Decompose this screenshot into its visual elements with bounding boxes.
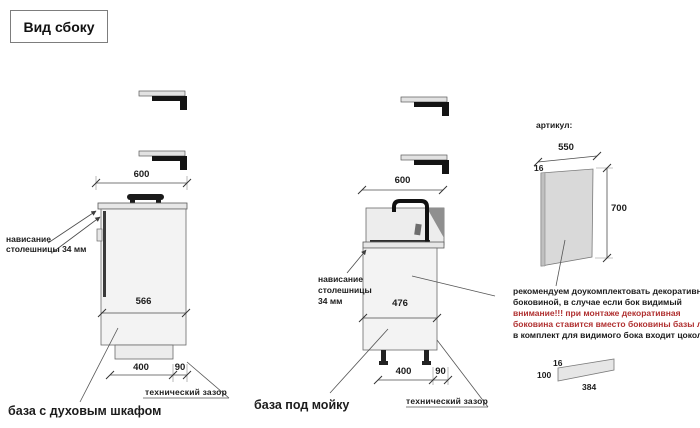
note-line-warning: боковина ставится вместо боковины базы л… [513,319,699,330]
note-line-warning: внимание!!! при монтаже декоративная [513,308,699,319]
dim-line-width [534,152,601,166]
plinth-panel [115,345,173,359]
oven-door-edge [103,211,106,297]
dim-476: 476 [363,298,437,309]
wall-bracket-icon [139,151,187,170]
wall-bracket-icon [401,155,449,174]
dim-400-left: 400 [110,362,172,373]
overhang-note-middle: нависание столешницы 34 мм [318,274,372,307]
dim-700: 700 [611,203,627,214]
note-line: боковиной, в случае если бок видимый [513,297,699,308]
dim-16-plinth: 16 [553,358,562,368]
panel-note-text: рекомендуем доукомплектовать декоративно… [513,286,699,341]
cabinet-body [101,209,186,345]
dim-600-middle: 600 [362,175,443,186]
article-label: артикул: [536,120,572,130]
wall-bracket-icon [401,97,449,116]
dim-100-plinth: 100 [537,370,551,380]
overhang-line: нависание [318,274,372,285]
dim-90-middle: 90 [428,366,453,377]
plinth-strip [558,359,614,381]
dim-550: 550 [535,142,597,153]
overhang-note-left: нависание столешницы 34 мм [6,234,86,254]
dim-384-plinth: 384 [582,382,596,392]
decorative-side-panel [541,169,593,266]
oven-top-handle-icon [127,194,164,203]
overhang-line: 34 мм [318,296,372,307]
technical-gap-label-middle: технический зазор [406,396,488,406]
countertop [363,242,444,248]
overhang-line: нависание [6,234,86,244]
drawing-linework [0,0,700,428]
dim-line-top [358,186,447,194]
dim-566: 566 [101,296,186,307]
page-title: Вид сбоку [10,10,108,43]
note-line: в комплект для видимого бока входит цоко… [513,330,699,341]
note-line: рекомендуем доукомплектовать декоративно… [513,286,699,297]
dim-16-panel: 16 [534,163,543,173]
overhang-line: столешницы 34 мм [6,244,86,254]
side-view-diagram: Вид сбоку 600 566 400 90 нависание столе… [0,0,700,428]
dim-600-left: 600 [96,169,187,180]
dim-90-left: 90 [166,362,194,373]
oven-cabinet-caption: база с духовым шкафом [8,404,161,418]
technical-gap-label-left: технический зазор [143,387,229,397]
adjustable-legs [379,350,431,365]
sink-cabinet-drawing [330,97,488,407]
panel-edge-face [541,173,545,266]
wall-bracket-icon [139,91,187,110]
overhang-line: столешницы [318,285,372,296]
dim-400-middle: 400 [376,366,431,377]
countertop [98,203,187,209]
sink-cabinet-caption: база под мойку [254,398,349,412]
oven-front-handle [97,229,102,241]
